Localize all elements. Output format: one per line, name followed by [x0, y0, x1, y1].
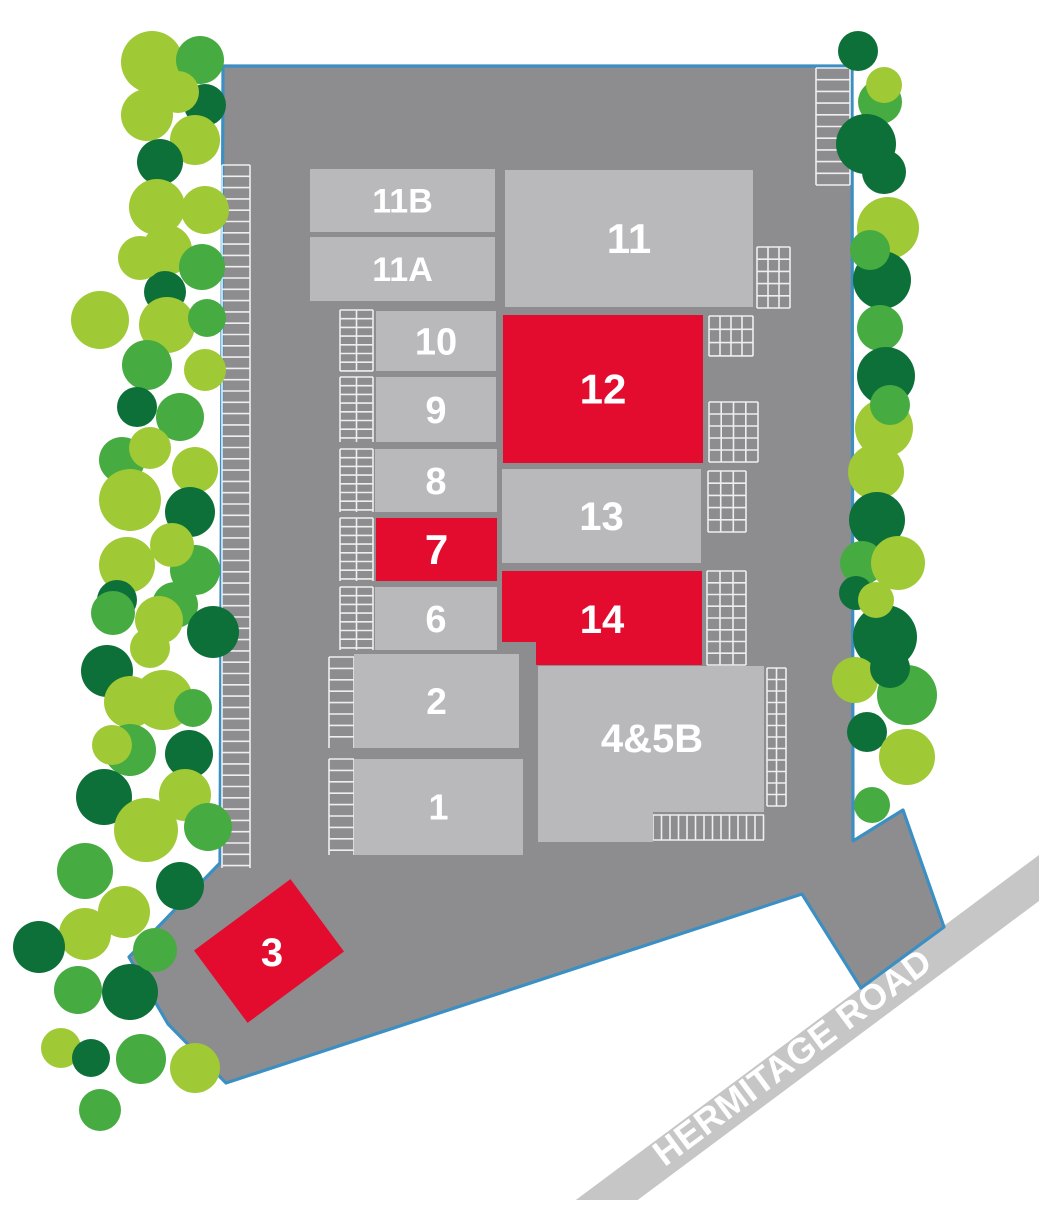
svg-text:11B: 11B — [372, 182, 433, 220]
svg-text:11A: 11A — [372, 251, 433, 289]
svg-text:12: 12 — [580, 366, 627, 413]
svg-text:11: 11 — [607, 215, 651, 262]
svg-text:14: 14 — [580, 598, 625, 642]
svg-text:10: 10 — [415, 321, 457, 363]
svg-text:9: 9 — [425, 390, 446, 432]
svg-text:8: 8 — [425, 461, 446, 503]
svg-text:2: 2 — [426, 681, 447, 722]
svg-text:1: 1 — [428, 787, 448, 828]
svg-text:3: 3 — [261, 931, 283, 975]
svg-text:7: 7 — [425, 526, 448, 573]
svg-text:13: 13 — [579, 495, 624, 539]
svg-text:4&5B: 4&5B — [601, 717, 703, 761]
svg-text:6: 6 — [425, 599, 446, 641]
